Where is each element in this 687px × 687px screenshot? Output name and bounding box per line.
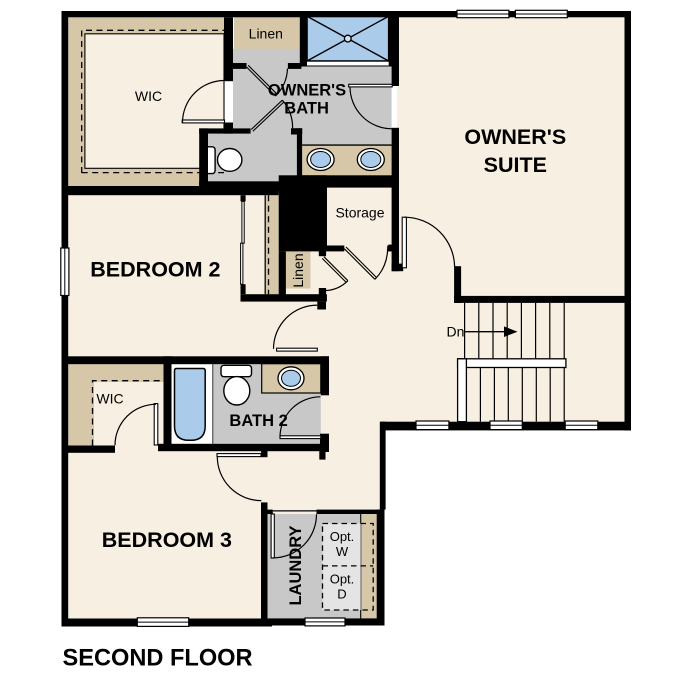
svg-text:OWNER'S: OWNER'S	[268, 82, 346, 100]
svg-text:BATH: BATH	[284, 100, 329, 118]
svg-text:Linen: Linen	[290, 253, 306, 287]
svg-text:Linen: Linen	[249, 25, 283, 41]
svg-text:W: W	[336, 544, 349, 559]
svg-text:Opt.: Opt.	[330, 529, 355, 544]
svg-text:D: D	[337, 586, 346, 601]
svg-text:Storage: Storage	[335, 205, 384, 221]
svg-text:OWNER'S: OWNER'S	[464, 125, 566, 149]
svg-text:WIC: WIC	[135, 88, 162, 104]
svg-text:WIC: WIC	[96, 391, 123, 407]
svg-text:BATH 2: BATH 2	[229, 412, 287, 430]
svg-text:LAUNDRY: LAUNDRY	[287, 525, 305, 605]
svg-text:SECOND FLOOR: SECOND FLOOR	[63, 646, 253, 672]
svg-text:Dn: Dn	[447, 324, 465, 340]
svg-text:BEDROOM 2: BEDROOM 2	[90, 258, 220, 282]
svg-text:SUITE: SUITE	[484, 153, 547, 177]
svg-text:Opt.: Opt.	[330, 571, 355, 586]
svg-text:BEDROOM 3: BEDROOM 3	[102, 528, 232, 552]
